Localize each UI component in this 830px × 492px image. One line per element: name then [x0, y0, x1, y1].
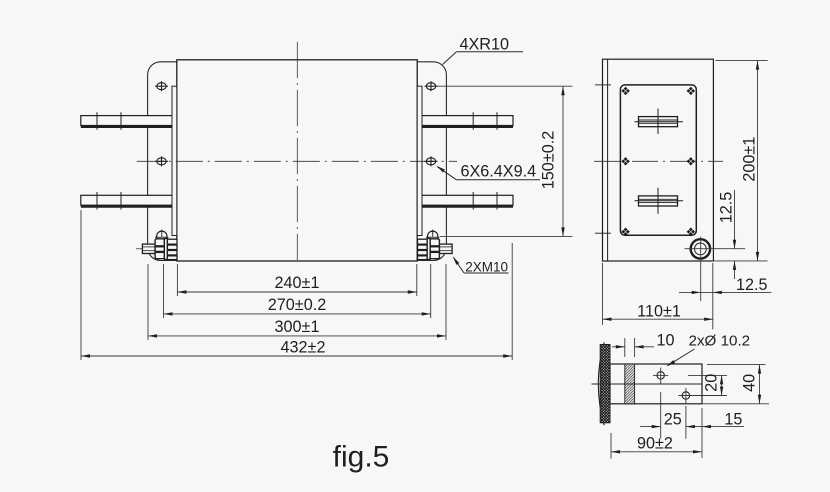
svg-text:6X6.4X9.4: 6X6.4X9.4	[461, 162, 537, 180]
svg-text:fig.5: fig.5	[333, 441, 390, 474]
svg-text:90±2: 90±2	[637, 434, 673, 452]
svg-text:40: 40	[740, 374, 758, 392]
svg-text:300±1: 300±1	[275, 318, 320, 336]
svg-text:20: 20	[702, 374, 720, 392]
svg-text:4XR10: 4XR10	[460, 35, 510, 53]
svg-text:25: 25	[664, 410, 682, 428]
svg-text:110±1: 110±1	[637, 303, 681, 321]
svg-text:432±2: 432±2	[281, 338, 326, 356]
svg-text:2xØ 10.2: 2xØ 10.2	[689, 333, 751, 350]
svg-text:12.5: 12.5	[736, 276, 768, 294]
svg-text:200±1: 200±1	[740, 137, 758, 182]
svg-text:240±1: 240±1	[275, 274, 320, 292]
svg-text:12.5: 12.5	[717, 192, 735, 224]
svg-text:2XM10: 2XM10	[465, 260, 508, 275]
svg-text:10: 10	[656, 331, 674, 349]
svg-text:270±0.2: 270±0.2	[268, 296, 326, 314]
svg-text:150±0.2: 150±0.2	[540, 131, 558, 189]
svg-text:15: 15	[724, 410, 742, 428]
